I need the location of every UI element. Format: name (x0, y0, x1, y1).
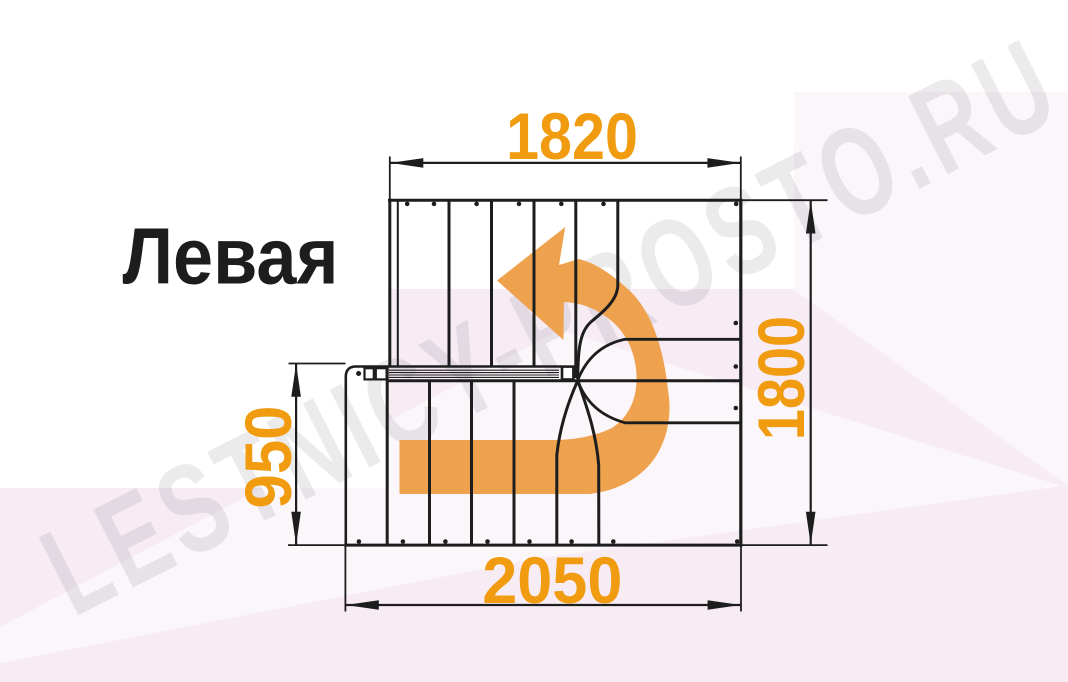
svg-text:1820: 1820 (506, 100, 638, 174)
svg-text:1800: 1800 (745, 316, 818, 440)
svg-text:2050: 2050 (482, 544, 622, 618)
svg-text:950: 950 (231, 406, 305, 509)
svg-text:Левая: Левая (123, 212, 339, 301)
